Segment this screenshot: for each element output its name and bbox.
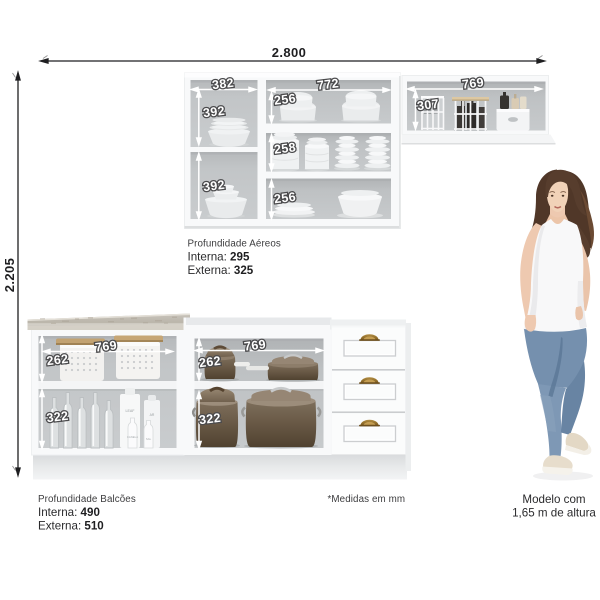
- svg-text:769: 769: [94, 338, 117, 355]
- svg-text:2.800: 2.800: [272, 45, 307, 60]
- svg-text:307: 307: [416, 97, 439, 114]
- svg-text:1,65 m de altura: 1,65 m de altura: [512, 507, 596, 520]
- svg-text:258: 258: [273, 140, 296, 157]
- svg-text:262: 262: [198, 354, 221, 371]
- svg-text:256: 256: [273, 190, 296, 207]
- svg-text:392: 392: [202, 104, 225, 121]
- svg-text:Interna: 490: Interna: 490: [38, 506, 100, 519]
- svg-text:2.205: 2.205: [2, 258, 17, 293]
- svg-text:772: 772: [316, 76, 339, 93]
- svg-text:Interna: 295: Interna: 295: [188, 251, 250, 264]
- svg-text:Profundidade Balcões: Profundidade Balcões: [38, 494, 136, 505]
- svg-text:Profundidade Aéreos: Profundidade Aéreos: [188, 239, 281, 250]
- svg-text:AR: AR: [150, 413, 155, 417]
- svg-text:322: 322: [46, 409, 69, 426]
- svg-text:SAL: SAL: [146, 437, 152, 441]
- svg-text:CANELA: CANELA: [127, 435, 138, 439]
- svg-text:LEAF: LEAF: [126, 409, 136, 413]
- svg-text:*Medidas em mm: *Medidas em mm: [328, 494, 406, 505]
- svg-text:256: 256: [273, 91, 296, 108]
- svg-text:262: 262: [46, 352, 69, 369]
- svg-text:769: 769: [461, 75, 484, 92]
- svg-text:Externa: 510: Externa: 510: [38, 520, 104, 533]
- svg-text:382: 382: [211, 76, 234, 93]
- svg-text:Externa: 325: Externa: 325: [188, 264, 254, 277]
- svg-text:Modelo com: Modelo com: [522, 493, 585, 506]
- svg-text:392: 392: [202, 178, 225, 195]
- svg-text:322: 322: [198, 411, 221, 428]
- svg-text:769: 769: [243, 337, 266, 354]
